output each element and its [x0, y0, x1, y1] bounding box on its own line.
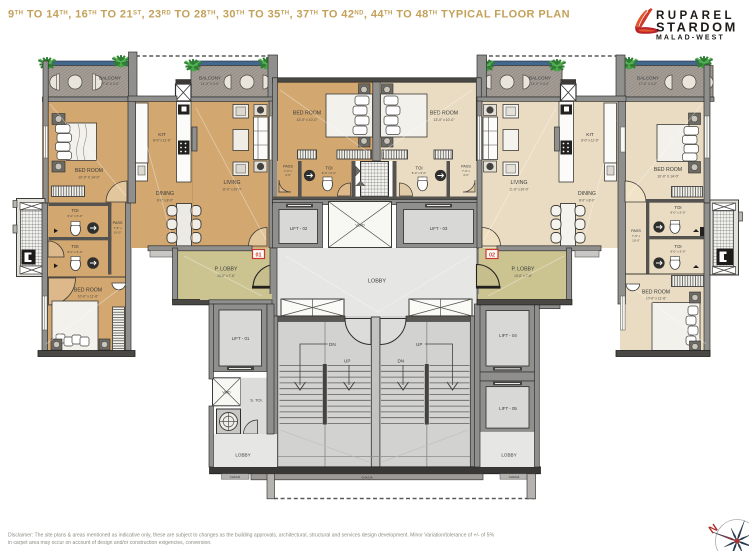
svg-text:CHAJJA: CHAJJA: [361, 476, 372, 480]
svg-text:DINING: DINING: [156, 191, 174, 197]
svg-text:LOBBY: LOBBY: [501, 453, 516, 458]
svg-text:TOI: TOI: [674, 205, 681, 210]
svg-text:8'-0" x 11'-0": 8'-0" x 11'-0": [581, 139, 599, 143]
svg-text:02: 02: [489, 253, 495, 259]
svg-text:10'-0": 10'-0": [632, 239, 640, 243]
svg-text:LIFT - 05: LIFT - 05: [499, 406, 517, 411]
svg-text:BED ROOM: BED ROOM: [642, 290, 670, 296]
svg-text:LIVING: LIVING: [510, 180, 527, 186]
svg-text:PASS: PASS: [461, 165, 471, 169]
svg-text:8'-0" x 5'-0": 8'-0" x 5'-0": [412, 171, 427, 175]
svg-text:8'-0" x 5'-0": 8'-0" x 5'-0": [670, 211, 685, 215]
svg-text:8'-0" x 8'-0": 8'-0" x 8'-0": [579, 199, 595, 203]
svg-text:BED ROOM: BED ROOM: [74, 288, 102, 294]
svg-text:8'-0" x 8'-0": 8'-0" x 8'-0": [157, 199, 173, 203]
svg-text:KIT: KIT: [586, 132, 594, 138]
svg-text:BALCONY: BALCONY: [529, 76, 551, 81]
svg-text:in carpet area may occur on ac: in carpet area may occur on account of d…: [8, 540, 212, 546]
svg-text:LOBBY: LOBBY: [368, 279, 386, 285]
svg-text:13'-0" x 10'-0": 13'-0" x 10'-0": [434, 118, 456, 122]
svg-text:8'-0" x 11'-0": 8'-0" x 11'-0": [153, 139, 171, 143]
svg-text:Disclaimer: The site plans & a: Disclaimer: The site plans & areas menti…: [8, 533, 494, 539]
svg-text:17'-6" X 4'-0": 17'-6" X 4'-0": [101, 82, 119, 86]
svg-text:4'-0": 4'-0": [463, 173, 469, 177]
svg-text:DN: DN: [329, 342, 336, 347]
svg-text:DN: DN: [398, 359, 405, 364]
svg-text:TOI: TOI: [71, 208, 78, 213]
svg-text:LIFT - 01: LIFT - 01: [232, 336, 250, 341]
svg-text:01: 01: [256, 253, 262, 259]
svg-text:STARDOM: STARDOM: [656, 20, 738, 35]
svg-text:TOI: TOI: [415, 166, 422, 171]
svg-text:BED ROOM: BED ROOM: [654, 167, 682, 173]
svg-text:10'-0": 10'-0": [114, 231, 122, 235]
svg-text:8'-0" x 5'-0": 8'-0" x 5'-0": [670, 250, 685, 254]
svg-text:TOI: TOI: [674, 244, 681, 249]
svg-text:BED ROOM: BED ROOM: [75, 168, 103, 174]
svg-text:CHAJJA: CHAJJA: [230, 475, 241, 479]
svg-text:KIT: KIT: [158, 132, 166, 138]
svg-text:PASS: PASS: [113, 221, 123, 225]
svg-text:14'-0" X 4'-0": 14'-0" X 4'-0": [531, 82, 549, 86]
svg-text:TOI: TOI: [71, 244, 78, 249]
svg-text:8'-0" x 5'-0": 8'-0" x 5'-0": [67, 250, 82, 254]
svg-text:8'-0" x 5'-0": 8'-0" x 5'-0": [67, 214, 82, 218]
svg-text:PASS: PASS: [631, 229, 641, 233]
svg-text:LIVING: LIVING: [223, 180, 240, 186]
svg-text:BED ROOM: BED ROOM: [430, 111, 458, 117]
svg-text:17'-6" X 4'-0": 17'-6" X 4'-0": [639, 82, 657, 86]
svg-text:UP: UP: [344, 359, 350, 364]
svg-text:LIFT - 03: LIFT - 03: [430, 226, 448, 231]
svg-text:P. LOBBY: P. LOBBY: [215, 267, 239, 273]
svg-text:BALCONY: BALCONY: [199, 76, 221, 81]
svg-text:7'-6" x: 7'-6" x: [113, 226, 122, 230]
svg-text:VOID: VOID: [355, 224, 365, 228]
svg-text:13'-0" x 10'-0": 13'-0" x 10'-0": [297, 118, 319, 122]
svg-text:PASS: PASS: [283, 165, 293, 169]
svg-text:P. LOBBY: P. LOBBY: [512, 267, 536, 273]
svg-text:4'-0": 4'-0": [285, 173, 291, 177]
svg-text:UP: UP: [416, 342, 422, 347]
svg-text:VOID: VOID: [222, 391, 231, 395]
svg-text:8'-0" x 5'-0": 8'-0" x 5'-0": [322, 171, 337, 175]
svg-text:14'-0" X 4'-0": 14'-0" X 4'-0": [201, 82, 219, 86]
svg-text:10'-0" x 11'-6": 10'-0" x 11'-6": [78, 295, 99, 299]
svg-text:10'-0" X 14'-0": 10'-0" X 14'-0": [657, 175, 679, 179]
svg-text:LIFT - 04: LIFT - 04: [499, 333, 517, 338]
svg-text:CHAJJA: CHAJJA: [509, 475, 520, 479]
svg-text:TOI: TOI: [325, 166, 332, 171]
svg-text:BALCONY: BALCONY: [637, 76, 659, 81]
svg-text:LOBBY: LOBBY: [235, 453, 250, 458]
svg-text:DINING: DINING: [578, 191, 596, 197]
svg-text:LIFT - 02: LIFT - 02: [290, 226, 308, 231]
svg-text:BALCONY: BALCONY: [99, 76, 121, 81]
svg-text:MALAD-WEST: MALAD-WEST: [656, 35, 725, 42]
svg-text:S. TOI.: S. TOI.: [250, 398, 263, 403]
svg-text:10'-0" X 14'-0": 10'-0" X 14'-0": [78, 176, 100, 180]
svg-text:7'-6" x: 7'-6" x: [632, 234, 641, 238]
